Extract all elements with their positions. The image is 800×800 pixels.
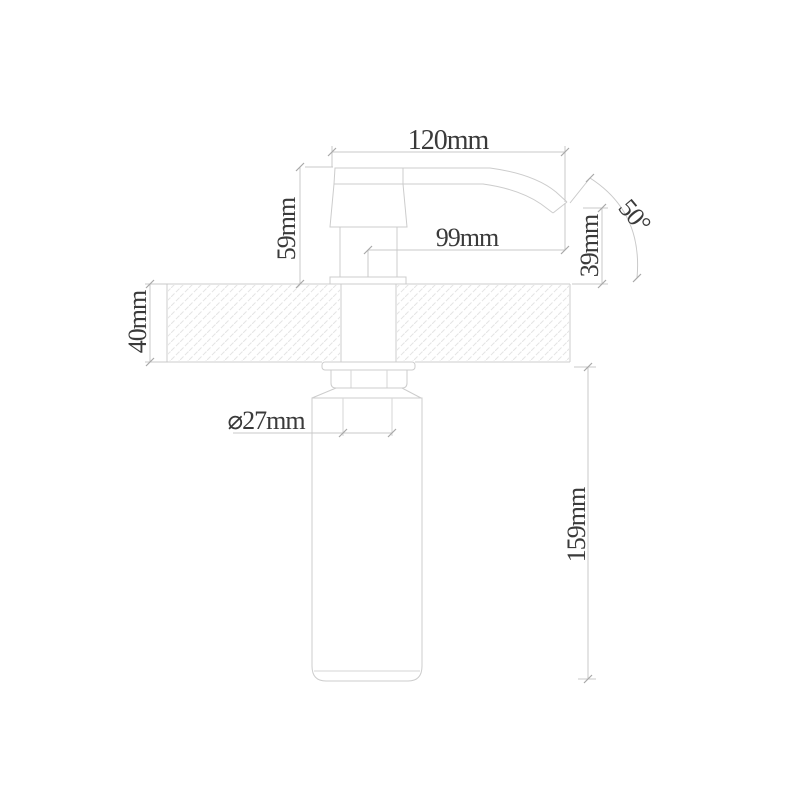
soap-dispenser-dimension-drawing: 120mm 59mm 99mm 39mm 50° 40mm ⌀27mm xyxy=(0,0,800,800)
pump-head xyxy=(330,168,407,227)
counter-deck xyxy=(167,284,570,362)
dimension-deck-thickness: 40mm xyxy=(123,280,168,366)
shank xyxy=(330,227,406,362)
dimension-label-bottle-height: 159mm xyxy=(562,487,591,562)
dimension-label-spout-angle: 50° xyxy=(613,193,657,238)
dimension-label-overall-width: 120mm xyxy=(408,125,490,156)
dimension-spout-drop: 39mm xyxy=(572,204,608,288)
technical-drawing-page: 120mm 59mm 99mm 39mm 50° 40mm ⌀27mm xyxy=(0,0,800,800)
dimension-label-spout-reach: 99mm xyxy=(436,223,499,252)
spout xyxy=(403,168,567,213)
dimension-head-height: 59mm xyxy=(272,163,333,288)
dimension-label-tube-diameter: ⌀27mm xyxy=(227,406,305,435)
soap-bottle xyxy=(312,398,422,681)
locknut xyxy=(312,362,421,398)
dimension-overall-width: 120mm xyxy=(328,125,569,202)
dimension-label-deck-thickness: 40mm xyxy=(123,290,152,353)
dimension-bottle-height: 159mm xyxy=(562,363,596,683)
dimension-label-head-height: 59mm xyxy=(272,197,301,260)
dimension-label-spout-drop: 39mm xyxy=(575,214,604,277)
dimension-spout-reach: 99mm xyxy=(364,203,569,277)
